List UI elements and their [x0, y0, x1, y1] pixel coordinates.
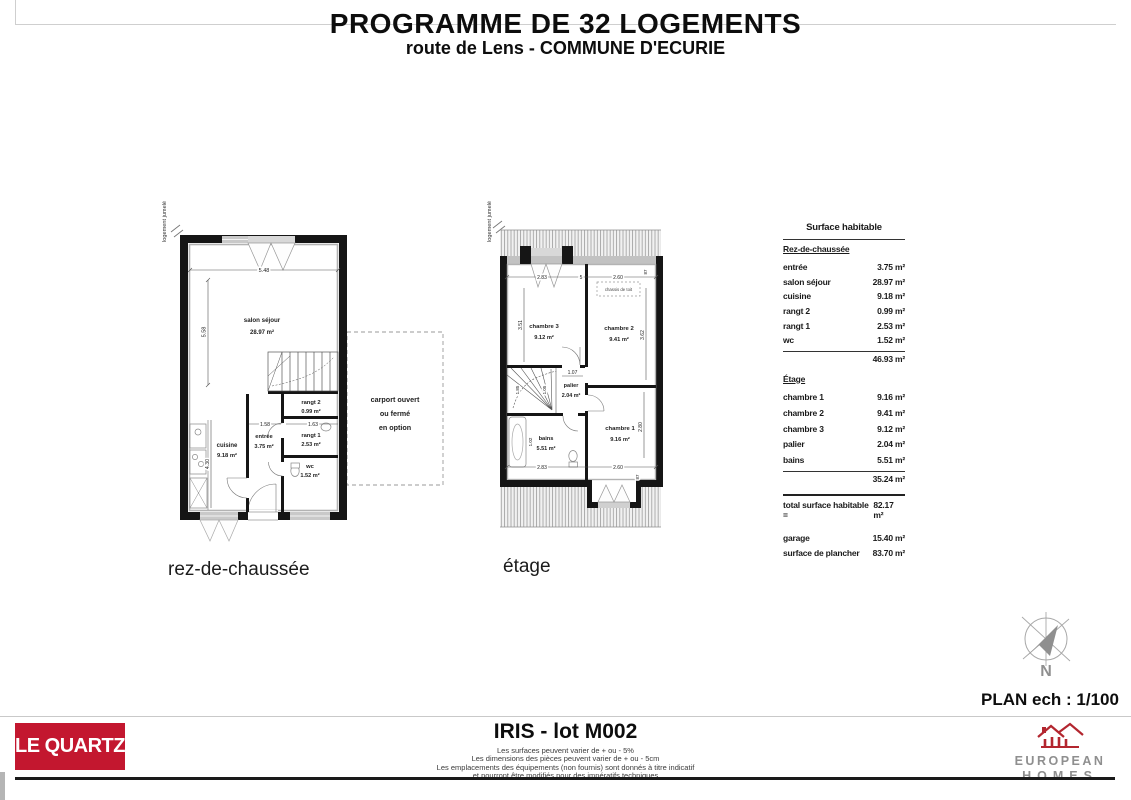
row-value: 0.99 m² [877, 306, 905, 316]
row-value: 9.16 m² [877, 392, 905, 402]
dim-top-mid: 5 [580, 275, 583, 281]
bains-name: bains [539, 436, 554, 442]
dim-stair-w1: 1.85 [515, 385, 520, 394]
table-row: chambre 39.12 m² [783, 421, 905, 437]
row-value: 9.12 m² [877, 424, 905, 434]
chambre1-area: 9.16 m² [610, 436, 630, 443]
dim-bain-width: 1.02 [528, 437, 533, 446]
table-row: chambre 19.16 m² [783, 390, 905, 406]
row-label: cuisine [783, 291, 811, 301]
dim-left-height: 5.58 [202, 327, 208, 338]
salon-name: salon séjour [244, 317, 281, 324]
dim-top-right: 2.60 [613, 275, 623, 281]
total-row: total surface habitable =82.17 m² [783, 494, 905, 520]
rdc-dimensions [188, 268, 340, 508]
etage-caption: étage [503, 556, 551, 578]
etage-jumele-label: logement jumelé [487, 201, 493, 242]
dim-ch1-height: 2.80 [638, 422, 644, 432]
row-value: 3.75 m² [877, 262, 905, 272]
palier-area: 2.04 m² [562, 393, 581, 399]
row-value: 9.18 m² [877, 291, 905, 301]
table-row: rangt 20.99 m² [783, 304, 905, 319]
wc-name: wc [305, 464, 315, 470]
dim-rangt-width: 1.63 [308, 422, 318, 428]
compass-icon [1012, 610, 1080, 668]
salon-area: 28.97 m² [250, 329, 274, 336]
wc-area: 1.52 m² [300, 472, 319, 479]
table-row: wc1.52 m² [783, 333, 905, 348]
table-row: palier2.04 m² [783, 436, 905, 452]
dim-entree-width: 1.58 [260, 422, 270, 428]
table-row: cuisine9.18 m² [783, 289, 905, 304]
carport-label-2: ou fermé [380, 409, 410, 418]
scale-label: PLAN ech : 1/100 [975, 690, 1125, 710]
page-subtitle: route de Lens - COMMUNE D'ECURIE [0, 38, 1131, 59]
etage-subtotal: 35.24 m² [783, 471, 905, 487]
plancher-row: surface de plancher83.70 m² [783, 548, 905, 558]
disclaimer-text: Les surfaces peuvent varier de + ou - 5%… [0, 747, 1131, 781]
row-label: palier [783, 439, 804, 449]
rdc-floorplan: logement jumelé carport ouvert ou fermé … [150, 180, 450, 558]
rdc-stairs [268, 352, 338, 391]
carport-label-3: en option [379, 423, 411, 432]
logo-line-1: EUROPEAN [1002, 754, 1118, 768]
garage-value: 15.40 m² [873, 533, 905, 543]
rdc-subtotal: 46.93 m² [783, 351, 905, 367]
rdc-room-labels: salon séjour 28.97 m² cuisine 9.18 m² en… [217, 317, 322, 479]
total-value: 82.17 m² [873, 500, 905, 520]
rangt2-name: rangt 2 [301, 400, 320, 406]
cuisine-name: cuisine [217, 443, 238, 449]
dim-top-left: 2.83 [537, 275, 547, 281]
dim-ch2-height: 3.62 [640, 330, 646, 340]
plancher-value: 83.70 m² [873, 548, 905, 558]
rangt2-area: 0.99 m² [301, 408, 320, 415]
row-label: rangt 2 [783, 306, 810, 316]
logo-line-2: HOMES [1002, 769, 1118, 783]
divider [783, 239, 905, 240]
entry-door-swing-icon [248, 484, 276, 512]
row-value: 2.04 m² [877, 439, 905, 449]
dim-palier-width: 1.07 [568, 370, 578, 376]
etage-floorplan: logement jumelé [478, 180, 683, 558]
row-label: salon séjour [783, 277, 831, 287]
roof-hatch-bottom [500, 480, 663, 527]
french-door-swing-icon [248, 243, 271, 270]
entree-name: entrée [255, 434, 273, 440]
plancher-label: surface de plancher [783, 548, 860, 558]
chambre1-name: chambre 1 [605, 426, 635, 432]
chambre2-name: chambre 2 [604, 326, 634, 332]
chambre2-area: 9.41 m² [609, 336, 629, 343]
total-label: total surface habitable = [783, 500, 873, 520]
etage-partitions [507, 264, 656, 480]
european-homes-logo: EUROPEAN HOMES [1002, 721, 1118, 783]
rdc-jumele-label: logement jumelé [162, 201, 168, 242]
surface-table: Surface habitable Rez-de-chaussée entrée… [783, 218, 905, 558]
row-label: chambre 2 [783, 408, 824, 418]
page-title: PROGRAMME DE 32 LOGEMENTS [0, 8, 1131, 40]
chassis-label: chassis de toit [605, 287, 633, 292]
table-row: bains5.51 m² [783, 452, 905, 468]
garage-label: garage [783, 533, 810, 543]
page-edge-mark [0, 772, 5, 800]
table-row: entrée3.75 m² [783, 260, 905, 275]
dim-top-width: 5.48 [259, 268, 270, 274]
row-value: 9.41 m² [877, 408, 905, 418]
house-icon [1032, 721, 1088, 749]
dim-bottom-right: 2.60 [613, 465, 623, 471]
dim-bottom-left: 2.83 [537, 465, 547, 471]
rangt1-area: 2.53 m² [301, 441, 320, 448]
cuisine-area: 9.18 m² [217, 452, 237, 459]
dim-bottom-edge: 87 [635, 474, 640, 480]
north-label: N [1012, 663, 1080, 681]
chambre3-name: chambre 3 [529, 324, 559, 330]
row-value: 1.52 m² [877, 335, 905, 345]
entree-area: 3.75 m² [254, 443, 273, 450]
dim-stair-w2: 1.05 [542, 385, 547, 394]
row-label: bains [783, 455, 804, 465]
rangt1-name: rangt 1 [301, 433, 321, 439]
bains-area: 5.51 m² [537, 445, 556, 452]
carport-option-area: carport ouvert ou fermé en option [347, 332, 443, 485]
rdc-section-heading: Rez-de-chaussée [783, 244, 905, 254]
dim-top-edge: 87 [643, 269, 648, 275]
footer-divider [0, 716, 1131, 717]
lot-title: IRIS - lot M002 [0, 720, 1131, 744]
plan-sheet: PROGRAMME DE 32 LOGEMENTS route de Lens … [0, 0, 1131, 800]
row-value: 5.51 m² [877, 455, 905, 465]
bath-fixtures [509, 417, 577, 467]
etage-door-swings [562, 347, 604, 431]
carport-label-1: carport ouvert [371, 395, 420, 404]
rdc-partitions [246, 391, 338, 512]
dim-cuisine-height: 4.30 [205, 459, 211, 469]
surface-table-title: Surface habitable [783, 218, 905, 239]
table-row: rangt 12.53 m² [783, 318, 905, 333]
row-label: chambre 1 [783, 392, 824, 402]
table-row: chambre 29.41 m² [783, 405, 905, 421]
row-value: 2.53 m² [877, 321, 905, 331]
garage-row: garage15.40 m² [783, 533, 905, 543]
table-row: salon séjour28.97 m² [783, 275, 905, 290]
dim-ch3-height: 3.51 [518, 320, 524, 330]
etage-section-heading: Étage [783, 374, 905, 384]
rdc-caption: rez-de-chaussée [168, 559, 310, 581]
palier-name: palier [564, 383, 580, 389]
row-label: rangt 1 [783, 321, 810, 331]
footer-rule [15, 777, 1115, 780]
chambre3-area: 9.12 m² [534, 334, 554, 341]
row-label: wc [783, 335, 794, 345]
row-label: chambre 3 [783, 424, 824, 434]
row-label: entrée [783, 262, 807, 272]
row-value: 28.97 m² [873, 277, 905, 287]
